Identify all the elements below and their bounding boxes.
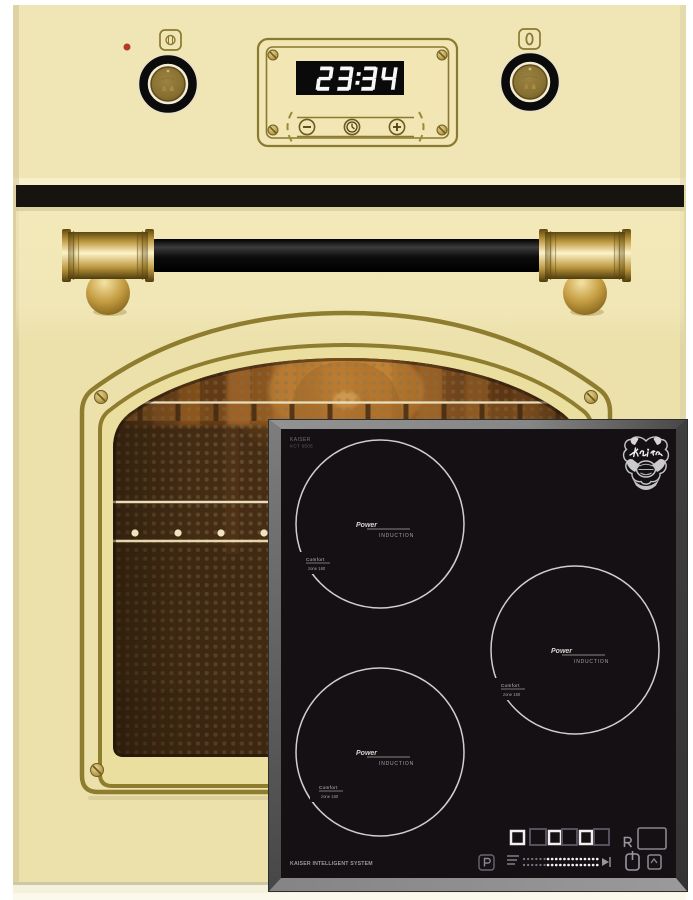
svg-text:Comfort: Comfort <box>306 557 325 562</box>
svg-text:KAISER: KAISER <box>290 437 311 443</box>
svg-text:Power: Power <box>551 648 573 655</box>
svg-text:INDUCTION: INDUCTION <box>379 533 414 539</box>
svg-text:KAISER INTELLIGENT SYSTEM: KAISER INTELLIGENT SYSTEM <box>290 861 373 867</box>
svg-text:Power: Power <box>356 750 378 757</box>
svg-text:Power: Power <box>356 522 378 529</box>
svg-text:KCT 6505: KCT 6505 <box>290 444 313 449</box>
svg-text:Comfort: Comfort <box>501 683 520 688</box>
svg-text:zone 160: zone 160 <box>321 794 339 799</box>
svg-text:zone 160: zone 160 <box>308 566 326 571</box>
svg-text:INDUCTION: INDUCTION <box>574 659 609 665</box>
svg-text:INDUCTION: INDUCTION <box>379 761 414 767</box>
svg-text:Comfort: Comfort <box>319 785 338 790</box>
svg-text:zone 160: zone 160 <box>503 692 521 697</box>
